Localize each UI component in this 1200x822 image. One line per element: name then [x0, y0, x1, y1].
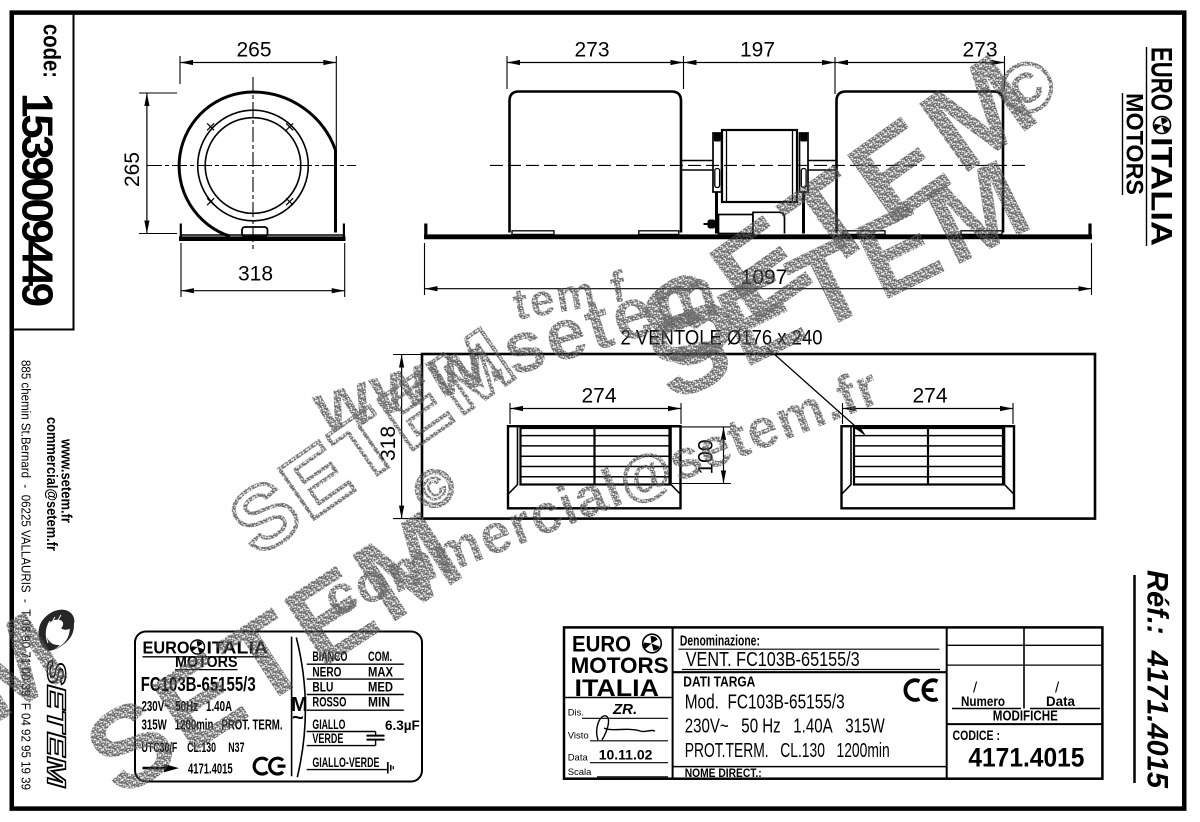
svg-text:318: 318 — [238, 263, 273, 286]
svg-text:4171.4015: 4171.4015 — [968, 743, 1084, 773]
svg-text:MOTORS: MOTORS — [1121, 93, 1148, 195]
svg-text:Mod. FC103B-65155/3: Mod. FC103B-65155/3 — [685, 692, 845, 714]
svg-text:code:: code: — [38, 24, 65, 78]
svg-text:ITALIA: ITALIA — [1145, 137, 1178, 246]
svg-text:ZR.: ZR. — [612, 701, 637, 718]
svg-text:1539009449: 1539009449 — [13, 93, 62, 306]
svg-text:Scala: Scala — [568, 767, 592, 778]
svg-text:VERDE: VERDE — [312, 731, 343, 746]
svg-text:GIALLO-VERDE: GIALLO-VERDE — [312, 755, 379, 770]
svg-text:GIALLO: GIALLO — [312, 717, 345, 732]
svg-text:197: 197 — [740, 39, 775, 62]
svg-text:265: 265 — [236, 39, 271, 62]
svg-text:Visto: Visto — [568, 731, 589, 742]
svg-text:10.11.02: 10.11.02 — [599, 746, 653, 762]
svg-text:MODIFICHE: MODIFICHE — [993, 709, 1058, 725]
svg-text:MIN: MIN — [368, 695, 390, 710]
svg-text:EURO: EURO — [1145, 47, 1178, 111]
svg-text:273: 273 — [574, 39, 609, 62]
svg-text:6.3µF: 6.3µF — [385, 718, 420, 733]
svg-text:CODICE :: CODICE : — [953, 727, 1001, 743]
svg-text:MED: MED — [368, 680, 393, 695]
svg-text:DATI TARGA: DATI TARGA — [683, 673, 755, 690]
svg-text:commercial@setem.fr: commercial@setem.fr — [43, 417, 60, 551]
svg-text:NOME DIRECT.:: NOME DIRECT.: — [685, 768, 762, 780]
svg-text:Data: Data — [1046, 694, 1075, 709]
svg-text:Dis.: Dis. — [568, 708, 584, 719]
svg-text:VENT. FC103B-65155/3: VENT. FC103B-65155/3 — [686, 649, 860, 671]
svg-text:MAX: MAX — [368, 664, 393, 679]
svg-text:230V~ 50 Hz 1.40A 315W: 230V~ 50 Hz 1.40A 315W — [685, 716, 885, 738]
svg-text:Denominazione:: Denominazione: — [680, 633, 760, 650]
svg-text:265: 265 — [121, 152, 144, 187]
svg-text:Numero: Numero — [961, 694, 1005, 709]
svg-text:Data: Data — [568, 753, 589, 764]
svg-text:PROT.TERM. CL.130 1200min: PROT.TERM. CL.130 1200min — [685, 740, 890, 762]
svg-text:274: 274 — [581, 385, 616, 408]
svg-text:274: 274 — [912, 385, 947, 408]
svg-text:Réf.: 4171.4015: Réf.: 4171.4015 — [1141, 570, 1174, 789]
